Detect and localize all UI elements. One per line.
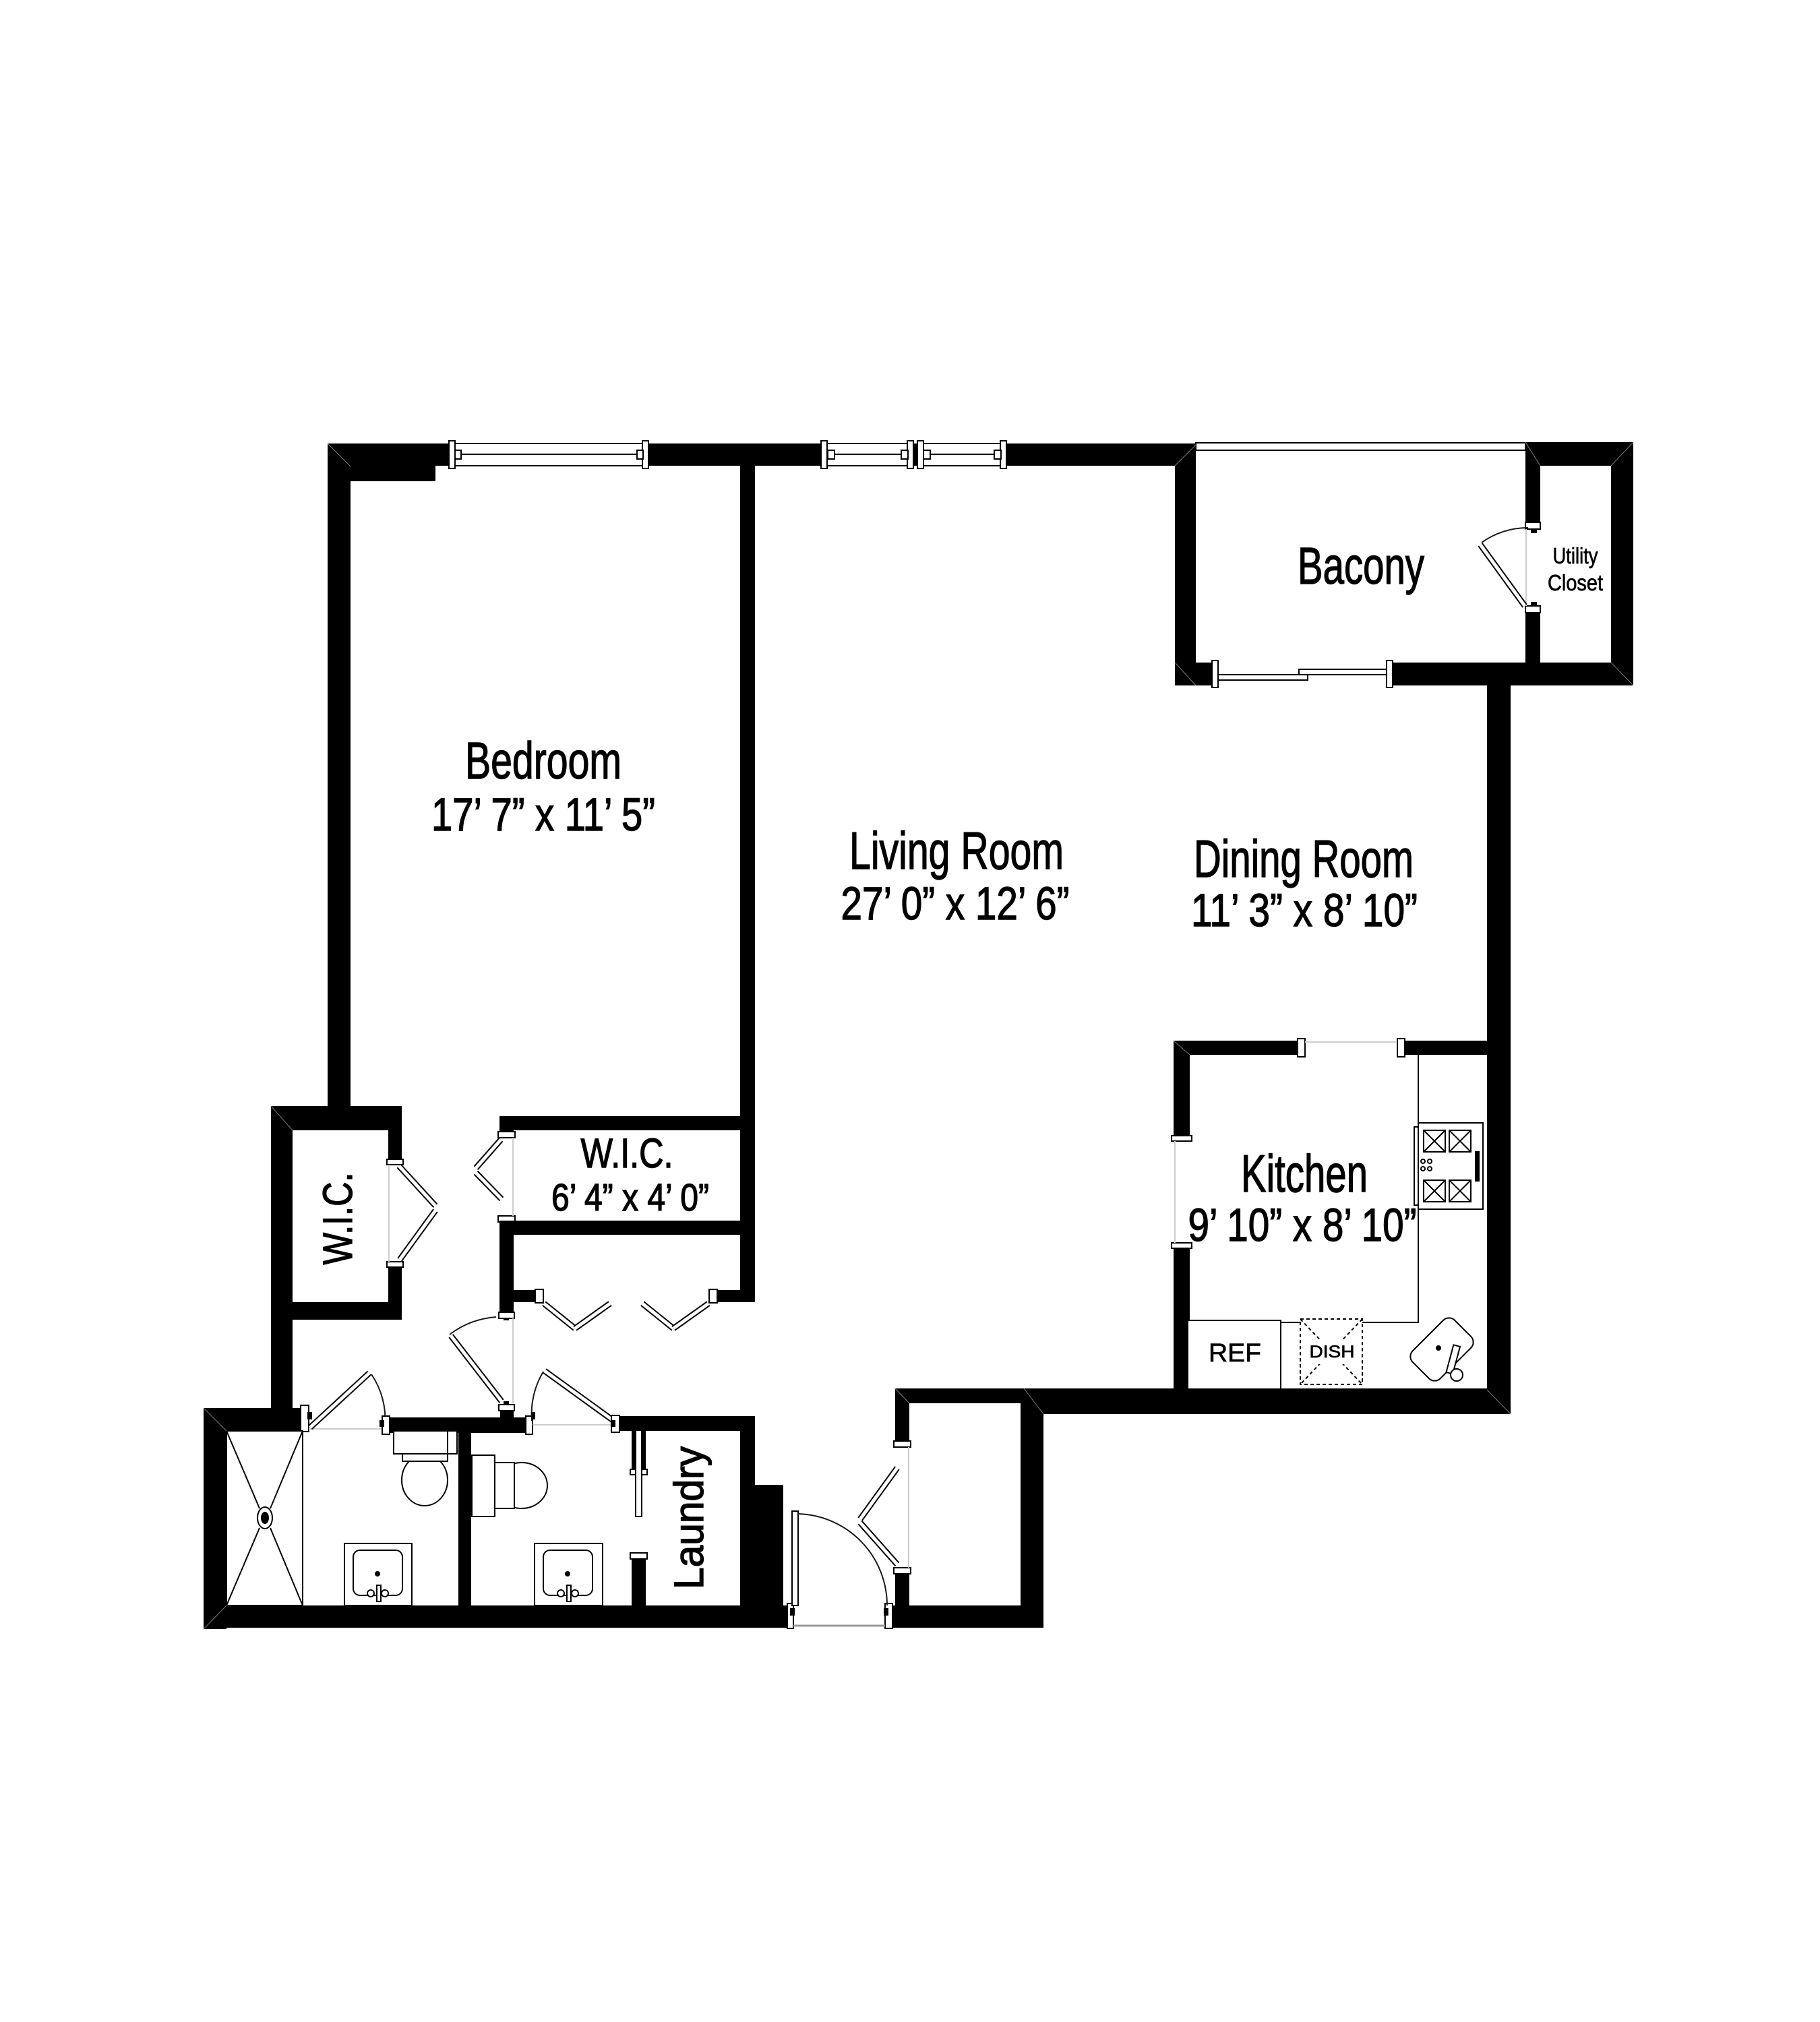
svg-text:27’ 0” x 12’ 6”: 27’ 0” x 12’ 6”: [841, 878, 1070, 929]
svg-text:Laundry: Laundry: [666, 1446, 712, 1589]
svg-text:Living Room: Living Room: [849, 821, 1064, 880]
svg-text:6’ 4” x 4’ 0”: 6’ 4” x 4’ 0”: [551, 1176, 709, 1219]
svg-text:REF: REF: [1209, 1339, 1261, 1368]
svg-text:Dining Room: Dining Room: [1194, 829, 1414, 888]
svg-text:Closet: Closet: [1548, 570, 1603, 595]
svg-text:Kitchen: Kitchen: [1241, 1144, 1368, 1203]
svg-text:DISH: DISH: [1310, 1343, 1355, 1361]
svg-text:17’ 7” x 11’ 5”: 17’ 7” x 11’ 5”: [431, 789, 655, 840]
svg-text:Bedroom: Bedroom: [465, 732, 621, 790]
svg-text:9’ 10” x 8’ 10”: 9’ 10” x 8’ 10”: [1188, 1199, 1417, 1251]
svg-text:W.I.C.: W.I.C.: [581, 1130, 673, 1176]
svg-text:W.I.C.: W.I.C.: [315, 1173, 361, 1265]
svg-text:11’ 3” x 8’ 10”: 11’ 3” x 8’ 10”: [1191, 884, 1418, 936]
svg-text:Utility: Utility: [1553, 543, 1598, 568]
svg-text:Bacony: Bacony: [1298, 537, 1424, 595]
